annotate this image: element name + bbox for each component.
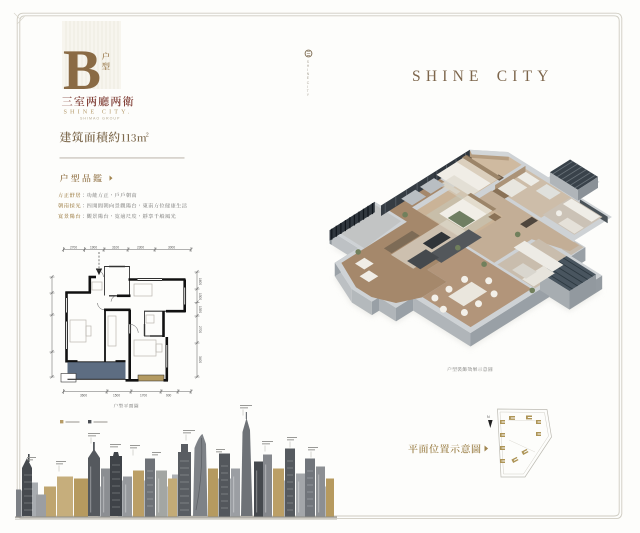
svg-text:2300: 2300 [137, 245, 144, 249]
svg-text:1300: 1300 [198, 293, 202, 300]
svg-text:SHINE CITY: SHINE CITY [412, 68, 554, 85]
svg-text:1700: 1700 [140, 394, 147, 398]
svg-text:2700: 2700 [198, 326, 202, 333]
svg-text:1900: 1900 [90, 245, 97, 249]
svg-text:3600: 3600 [80, 394, 87, 398]
svg-text:2700: 2700 [70, 245, 77, 249]
svg-text:1600: 1600 [198, 278, 202, 285]
svg-text:Y: Y [307, 93, 310, 97]
svg-text:900: 900 [166, 394, 172, 398]
svg-text:SHIMAO GROUP: SHIMAO GROUP [80, 117, 120, 121]
svg-text:3400: 3400 [198, 356, 202, 363]
svg-text:1350: 1350 [198, 306, 202, 313]
svg-text:3000: 3000 [168, 245, 175, 249]
svg-text:B: B [63, 39, 101, 102]
svg-text:N: N [487, 415, 490, 419]
svg-text:E: E [307, 76, 310, 80]
svg-text:SHINE CITY.: SHINE CITY. [64, 109, 133, 116]
svg-text:3100: 3100 [112, 245, 119, 249]
svg-text:1500: 1500 [113, 394, 120, 398]
